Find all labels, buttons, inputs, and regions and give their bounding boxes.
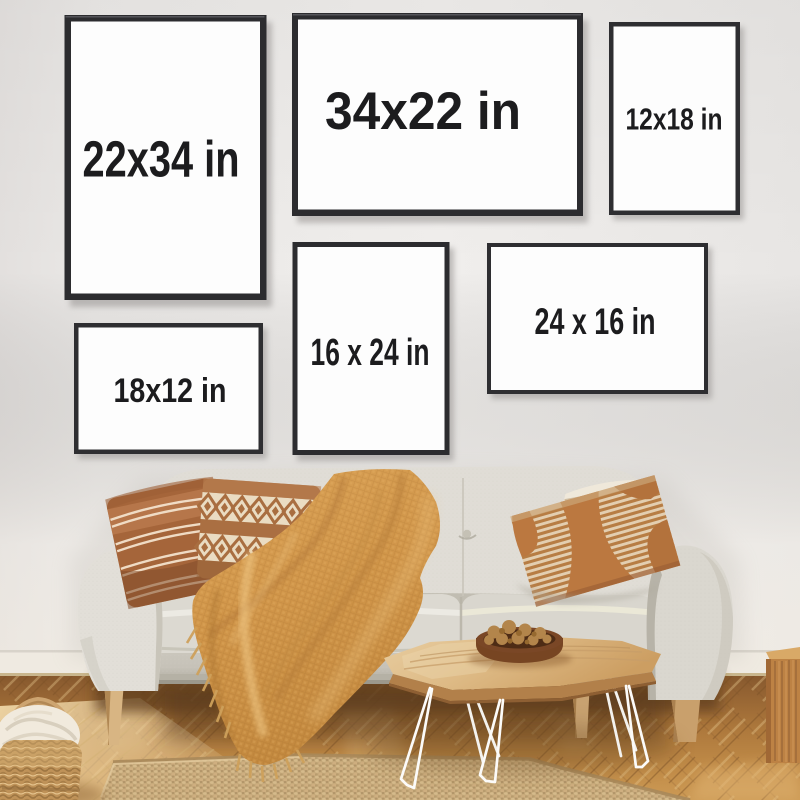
svg-text:16 x 24 in: 16 x 24 in (311, 332, 430, 374)
svg-text:34x22 in: 34x22 in (325, 82, 521, 141)
svg-text:18x12 in: 18x12 in (114, 372, 227, 410)
svg-text:22x34 in: 22x34 in (83, 131, 240, 188)
svg-text:12x18 in: 12x18 in (626, 102, 723, 137)
svg-text:24 x 16 in: 24 x 16 in (535, 300, 656, 342)
